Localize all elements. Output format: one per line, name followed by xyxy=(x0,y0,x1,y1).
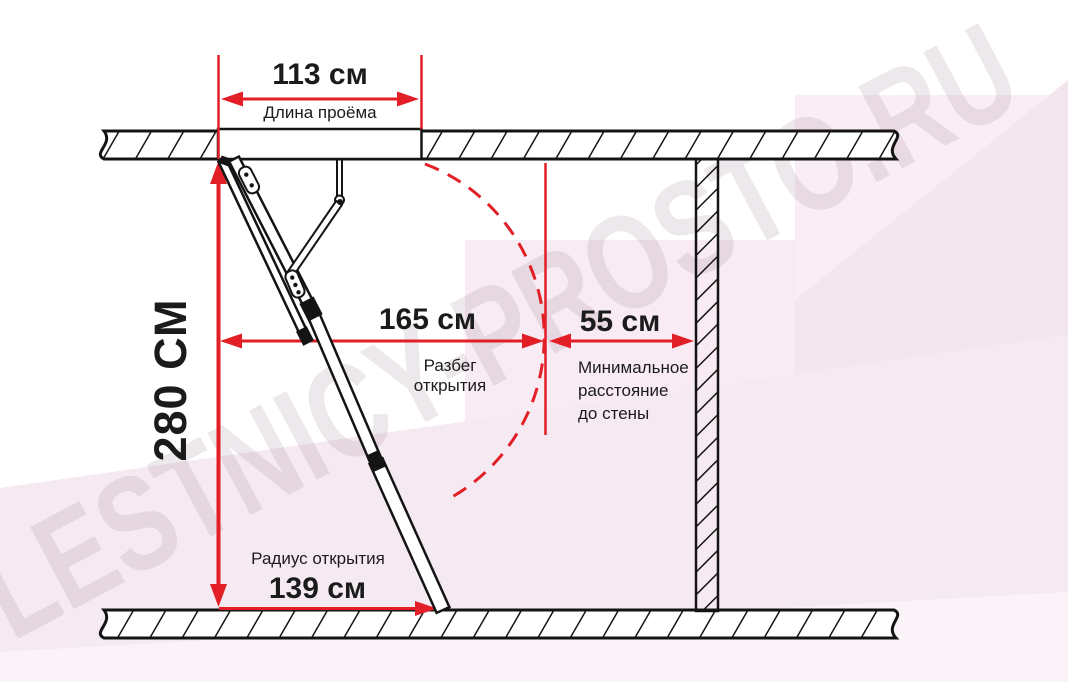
dimension-height-value: 280 СМ xyxy=(145,270,195,490)
hatch-door-panel xyxy=(218,158,308,337)
ladder-dimensions-diagram: LESTNICY-PROSTO.RU xyxy=(0,0,1068,682)
suspension-rod xyxy=(337,159,342,197)
dimension-clearance-label: Минимальное расстояние до стены xyxy=(578,356,708,425)
dimension-radius-label: Радиус открытия xyxy=(248,549,388,569)
dimension-swing-label: Разбег открытия xyxy=(385,356,515,395)
dimension-clearance-value: 55 см xyxy=(560,305,680,340)
floor-hatch xyxy=(100,610,897,638)
dimension-radius-value: 139 см xyxy=(250,572,385,607)
arrowhead xyxy=(220,334,242,349)
ceiling-opening xyxy=(218,129,422,159)
arm-pivot-top xyxy=(337,199,343,205)
dimension-opening-label: Длина проёма xyxy=(219,103,421,123)
spring-arm xyxy=(286,201,342,278)
dimension-opening-value: 113 см xyxy=(219,58,421,93)
dimension-swing-value: 165 см xyxy=(360,303,495,338)
